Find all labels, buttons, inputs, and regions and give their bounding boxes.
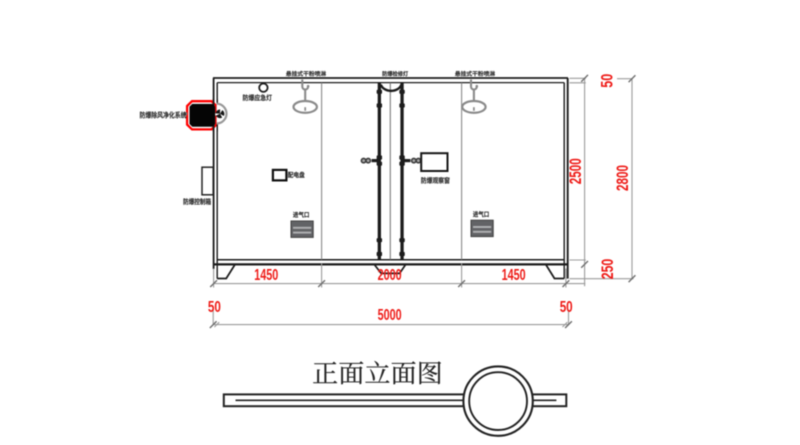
svg-text:250: 250 [599,259,617,280]
svg-text:1450: 1450 [502,267,526,284]
svg-text:1450: 1450 [254,267,278,284]
svg-text:50: 50 [208,299,221,316]
svg-text:2000: 2000 [378,267,402,284]
svg-text:2500: 2500 [567,158,585,184]
svg-text:5000: 5000 [378,307,402,324]
svg-text:50: 50 [560,299,573,316]
svg-text:2800: 2800 [614,165,632,191]
svg-text:50: 50 [599,74,617,88]
